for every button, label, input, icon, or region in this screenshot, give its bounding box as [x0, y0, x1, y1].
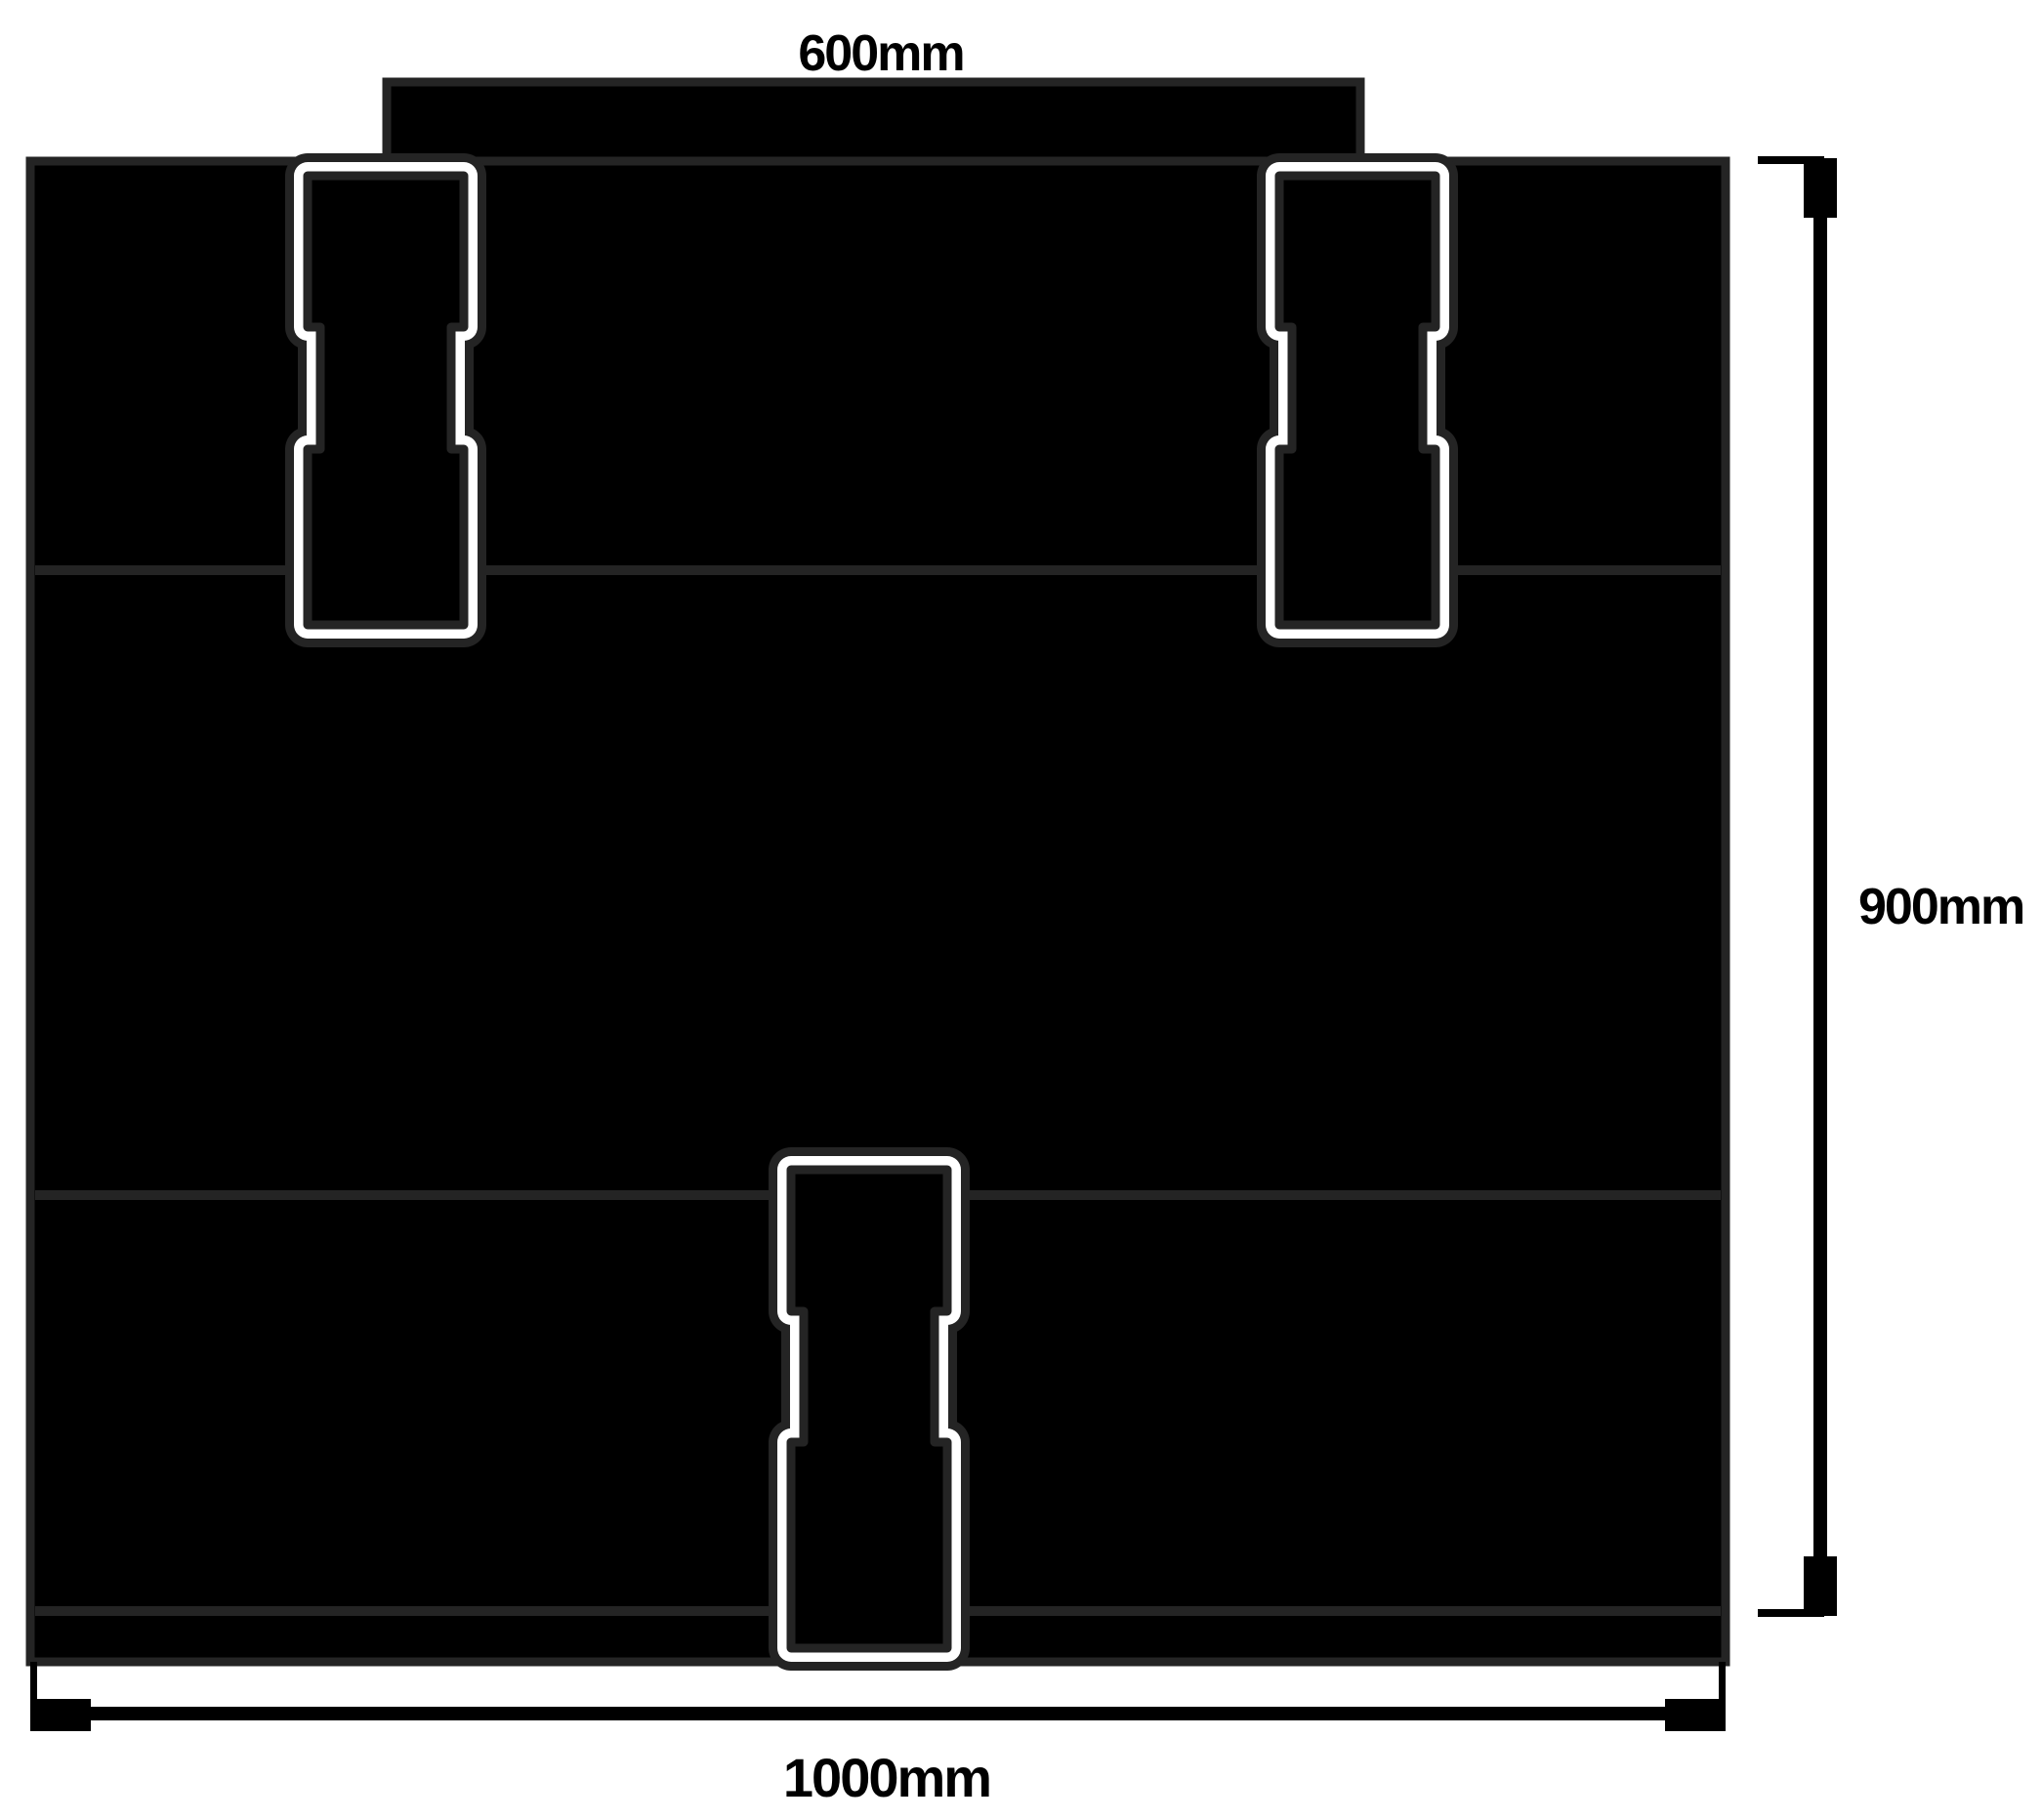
clip-right-body	[1279, 176, 1436, 625]
width-dim-left-extension	[30, 1662, 37, 1703]
height-dim-bottom-marker	[1804, 1556, 1837, 1616]
height-dim-bottom-tick	[1758, 1609, 1824, 1617]
clip-right	[1279, 176, 1436, 625]
width-dim-right-marker	[1665, 1699, 1726, 1731]
height-dimension-line	[1758, 156, 1837, 1617]
clip-bottom-body	[791, 1170, 947, 1648]
clip-left-body	[308, 176, 464, 625]
width-dimension-line	[30, 1662, 1726, 1731]
bottom-width-label: 1000mm	[783, 1747, 990, 1808]
clip-bottom	[791, 1170, 947, 1648]
dimension-drawing: 600mm 900mm 1000mm	[0, 0, 2041, 1820]
width-dim-line	[35, 1707, 1721, 1720]
drawing-canvas: 600mm 900mm 1000mm	[0, 0, 2041, 1820]
width-dim-right-extension	[1719, 1662, 1726, 1703]
height-dim-line	[1813, 163, 1827, 1613]
top-width-label: 600mm	[798, 25, 963, 82]
clip-left	[308, 176, 464, 625]
height-label: 900mm	[1858, 879, 2023, 935]
